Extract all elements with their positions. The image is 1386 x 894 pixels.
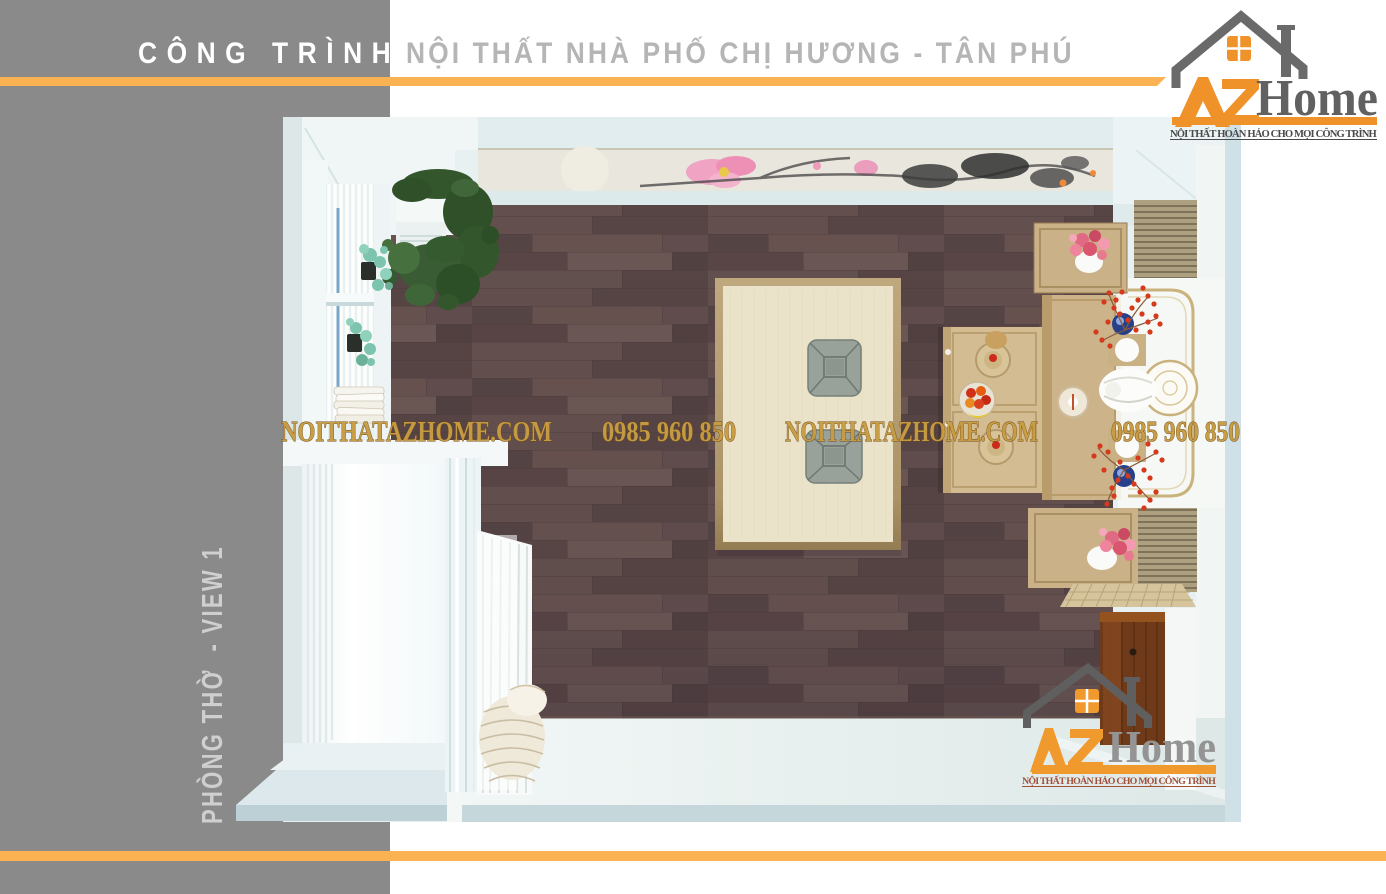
svg-text:NỘI THẤT HOÀN HẢO CHO MỌI CÔNG: NỘI THẤT HOÀN HẢO CHO MỌI CÔNG TRÌNH [1022,774,1216,787]
svg-text:NOITHATAZHOME.COM: NOITHATAZHOME.COM [281,417,552,448]
svg-text:NỘI THẤT HOÀN HẢO CHO MỌI CÔNG: NỘI THẤT HOÀN HẢO CHO MỌI CÔNG TRÌNH [1170,127,1378,140]
svg-text:Home: Home [1108,721,1216,772]
svg-text:NOITHATAZHOME.COM: NOITHATAZHOME.COM [785,417,1038,448]
svg-text:0985 960 850: 0985 960 850 [1111,417,1240,448]
svg-text:0985 960 850: 0985 960 850 [602,417,736,448]
